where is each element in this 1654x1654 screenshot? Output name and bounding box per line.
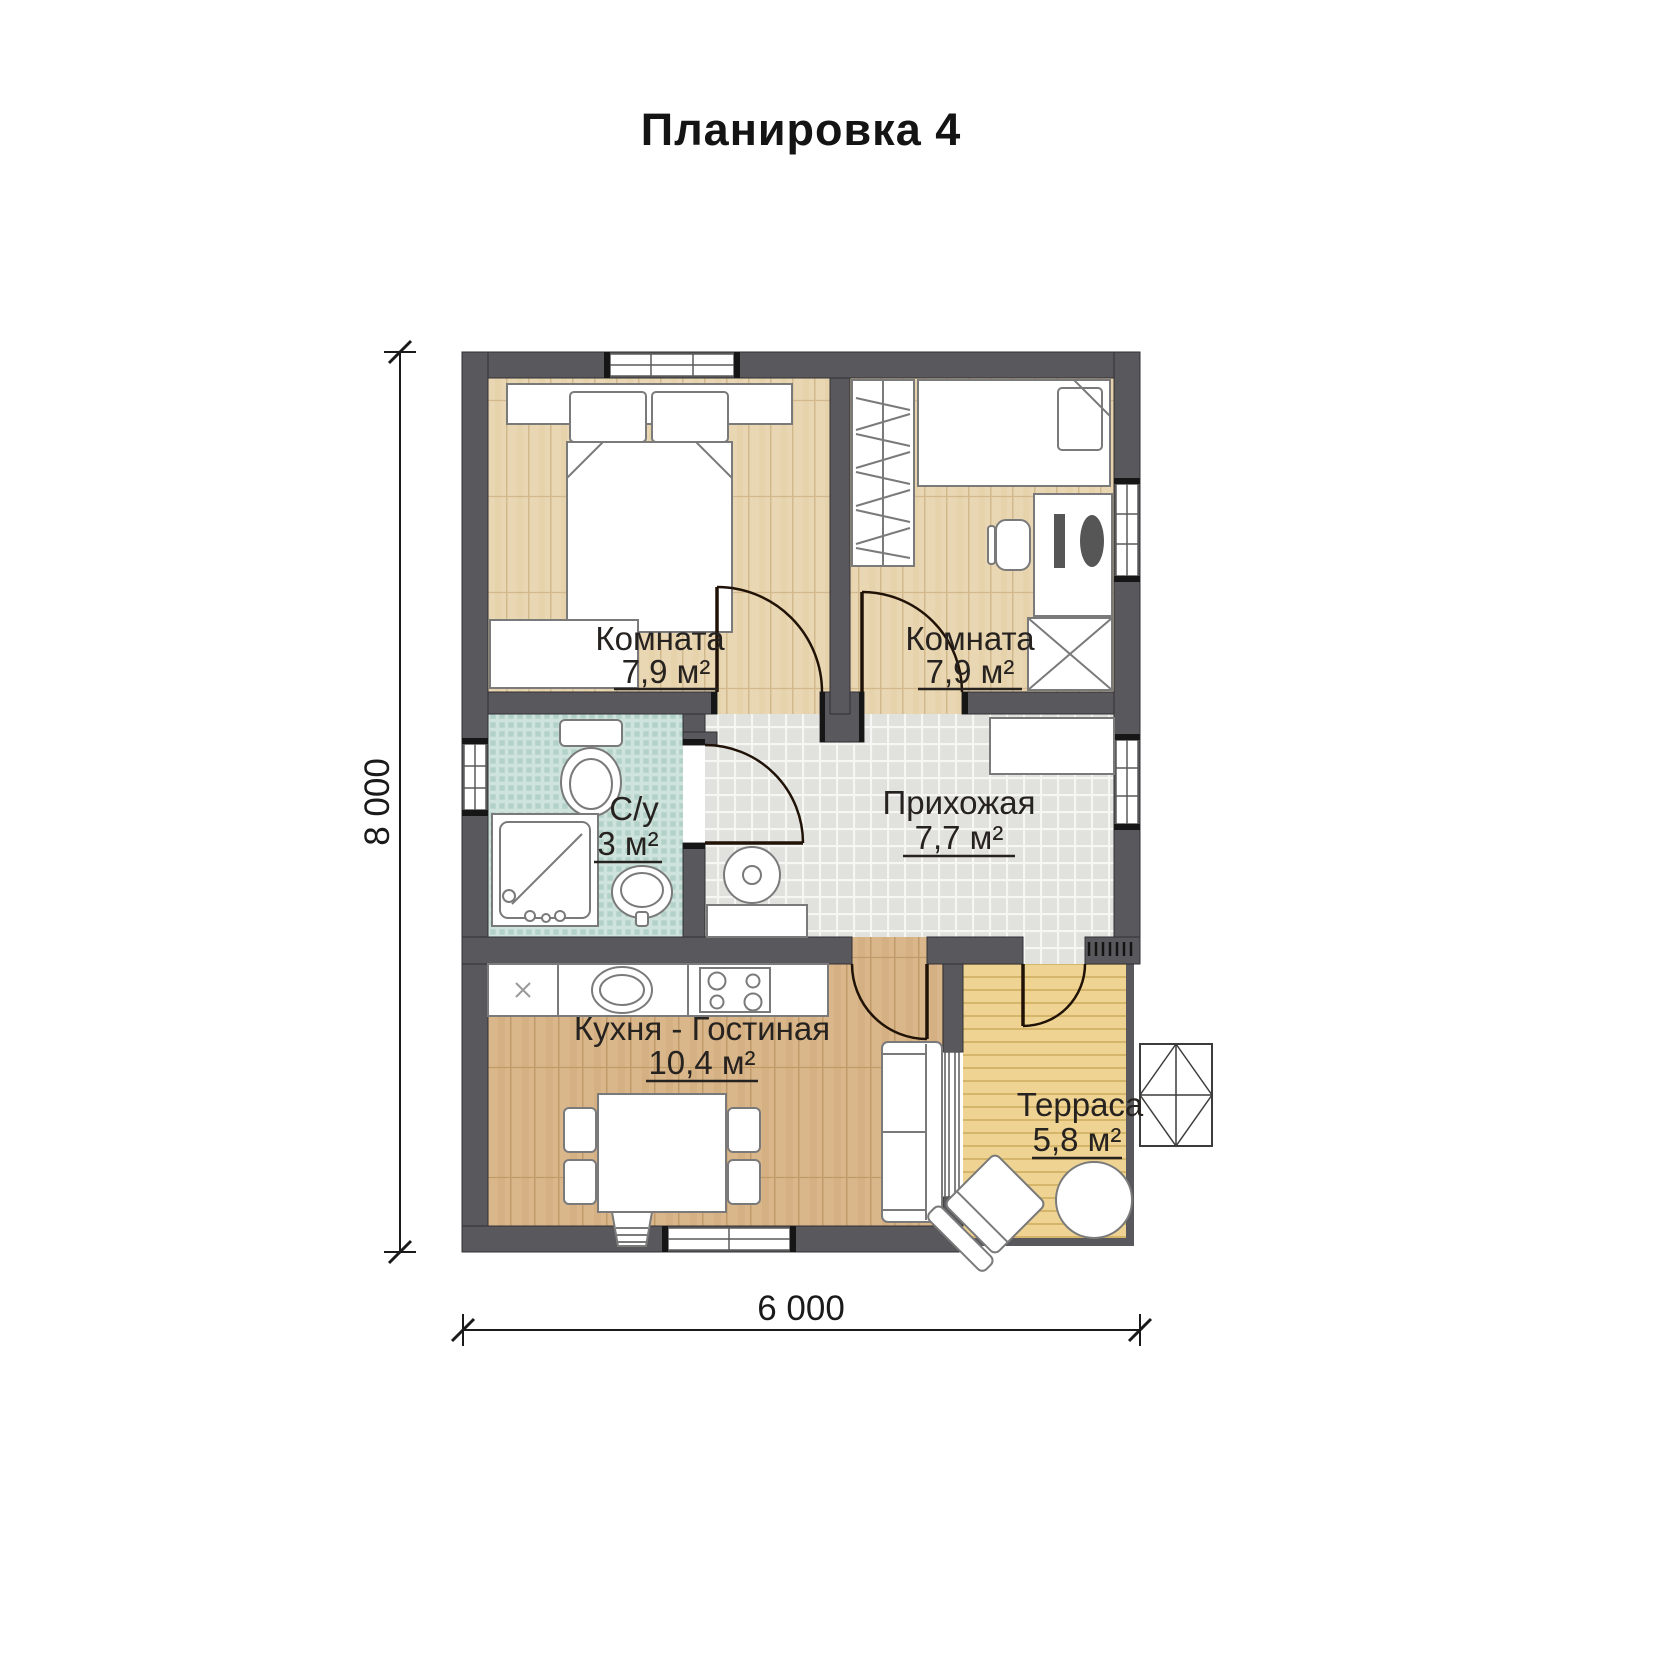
hallway-area: 7,7 м² [915,819,1004,856]
window-bottom-kitchen [662,1226,796,1252]
dimension-horizontal-label: 6 000 [757,1289,845,1328]
terrace-name: Терраса [1017,1086,1144,1123]
chair [564,1108,596,1152]
stove [700,968,770,1012]
floor-plan: Комната 7,9 м² Комната 7,9 м² С/у 3 м² П… [462,352,1212,1273]
window-right-hallway [1114,734,1140,830]
window-left-bathroom [462,738,488,816]
chair [728,1108,760,1152]
pillow [1058,388,1102,450]
window-top-bedroom1 [604,352,740,378]
monitor-icon [1054,514,1065,568]
bed-headboard [507,384,792,424]
chair [564,1160,596,1204]
pillow [570,392,646,442]
bedroom-divider-wall [830,378,850,714]
kitchen-name: Кухня - Гостиная [574,1010,830,1047]
window-right-bedroom2 [1114,478,1140,582]
chair [728,1160,760,1204]
sofa [882,1042,942,1222]
chair [996,520,1030,570]
chair-back [988,526,995,564]
console-cabinet [990,718,1114,774]
closet-x [1028,618,1112,690]
round-table [1056,1162,1132,1238]
wardrobe-open [852,380,914,566]
dining-table [598,1094,726,1212]
bedroom-2-name: Комната [905,620,1035,657]
bedroom-1-area: 7,9 м² [622,653,711,690]
bathroom-name: С/у [609,790,659,827]
doormat [1089,942,1131,956]
dimension-vertical-label: 8 000 [358,758,397,846]
terrace-area: 5,8 м² [1033,1121,1122,1158]
kitchen-area: 10,4 м² [648,1044,755,1081]
pillow [652,392,728,442]
kitchen-counter [488,964,828,1016]
bedroom-2-area: 7,9 м² [926,653,1015,690]
hallway-name: Прихожая [883,784,1036,821]
dimension-horizontal: 6 000 [452,1289,1151,1346]
dimension-vertical: 8 000 [358,341,416,1263]
washing-machine [724,847,780,903]
glazing-kitchen-terrace [945,1052,959,1197]
double-bed [567,442,732,632]
entrance-steps [1140,1044,1212,1146]
floor-plan-canvas: Комната 7,9 м² Комната 7,9 м² С/у 3 м² П… [0,0,1654,1654]
shower [492,814,598,926]
desk-chair-back [1080,515,1104,567]
bedroom-1-name: Комната [595,620,725,657]
bathroom-area: 3 м² [597,825,658,862]
hall-cabinet [707,905,807,937]
